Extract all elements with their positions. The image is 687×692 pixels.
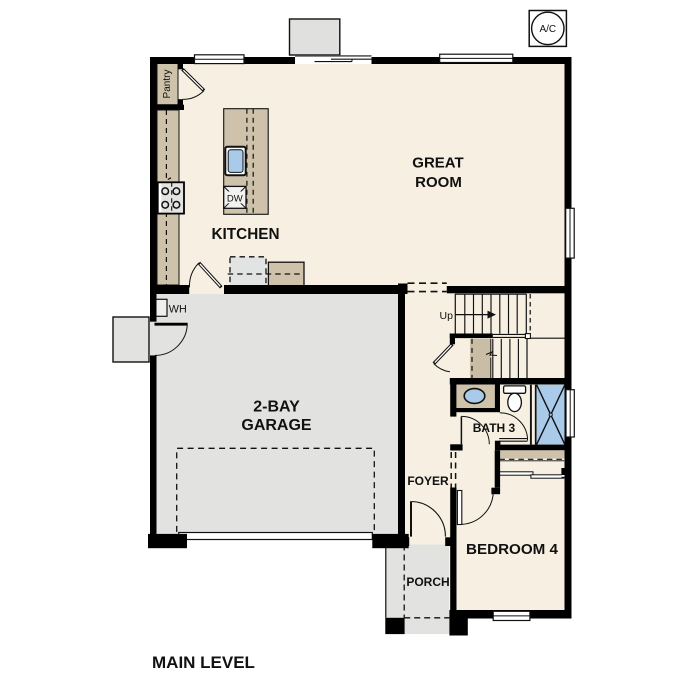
svg-text:GARAGE: GARAGE xyxy=(241,417,312,434)
svg-text:WH: WH xyxy=(169,303,187,315)
svg-text:2-BAY: 2-BAY xyxy=(253,399,300,416)
svg-text:PORCH: PORCH xyxy=(406,575,449,589)
svg-text:DW: DW xyxy=(227,194,243,205)
svg-text:KITCHEN: KITCHEN xyxy=(212,226,280,243)
svg-text:Up: Up xyxy=(440,310,454,322)
svg-text:MAIN LEVEL: MAIN LEVEL xyxy=(152,653,255,672)
svg-text:BATH 3: BATH 3 xyxy=(473,421,516,435)
svg-text:Pantry: Pantry xyxy=(162,70,173,99)
svg-text:ROOM: ROOM xyxy=(415,174,462,191)
svg-text:FOYER: FOYER xyxy=(407,474,449,488)
svg-text:BEDROOM 4: BEDROOM 4 xyxy=(466,541,559,558)
svg-text:A/C: A/C xyxy=(539,24,556,35)
svg-text:GREAT: GREAT xyxy=(412,155,463,172)
